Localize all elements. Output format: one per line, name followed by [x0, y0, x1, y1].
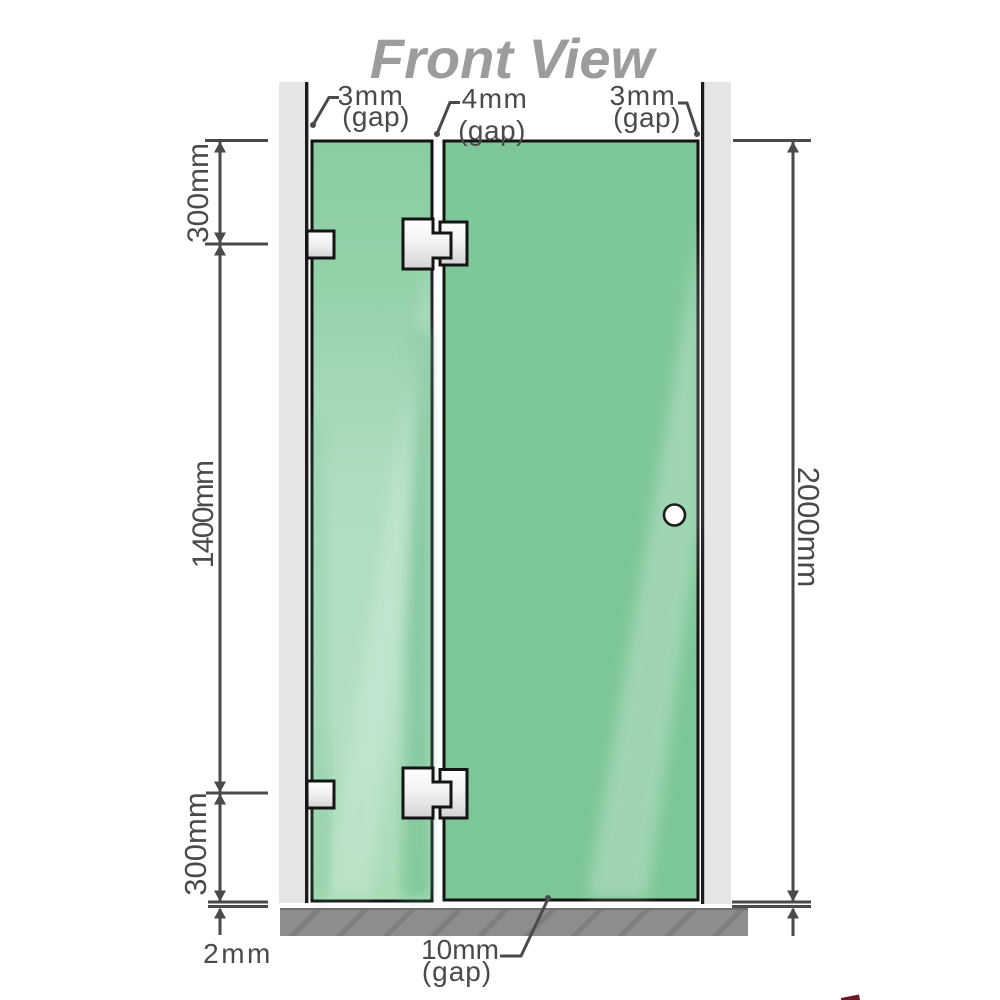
svg-text:(gap): (gap)	[613, 102, 681, 133]
svg-text:2000mm: 2000mm	[791, 467, 826, 588]
svg-text:2mm: 2mm	[203, 938, 273, 969]
svg-text:300mm: 300mm	[178, 792, 213, 895]
svg-text:1400mm: 1400mm	[187, 461, 220, 568]
svg-text:4mm: 4mm	[462, 83, 529, 114]
svg-text:(gap): (gap)	[342, 101, 410, 132]
svg-text:(gap): (gap)	[458, 115, 526, 146]
svg-text:(gap): (gap)	[422, 956, 492, 987]
svg-text:300mm: 300mm	[182, 143, 215, 243]
